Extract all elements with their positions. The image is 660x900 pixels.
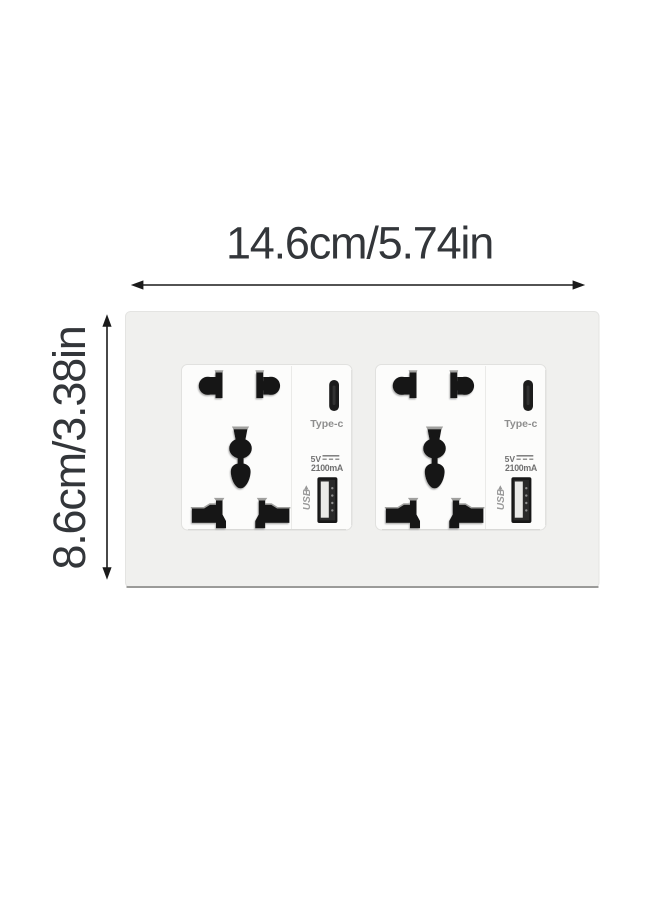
- svg-text:8.6cm/3.38in: 8.6cm/3.38in: [44, 326, 95, 569]
- svg-text:14.6cm/5.74in: 14.6cm/5.74in: [226, 218, 493, 269]
